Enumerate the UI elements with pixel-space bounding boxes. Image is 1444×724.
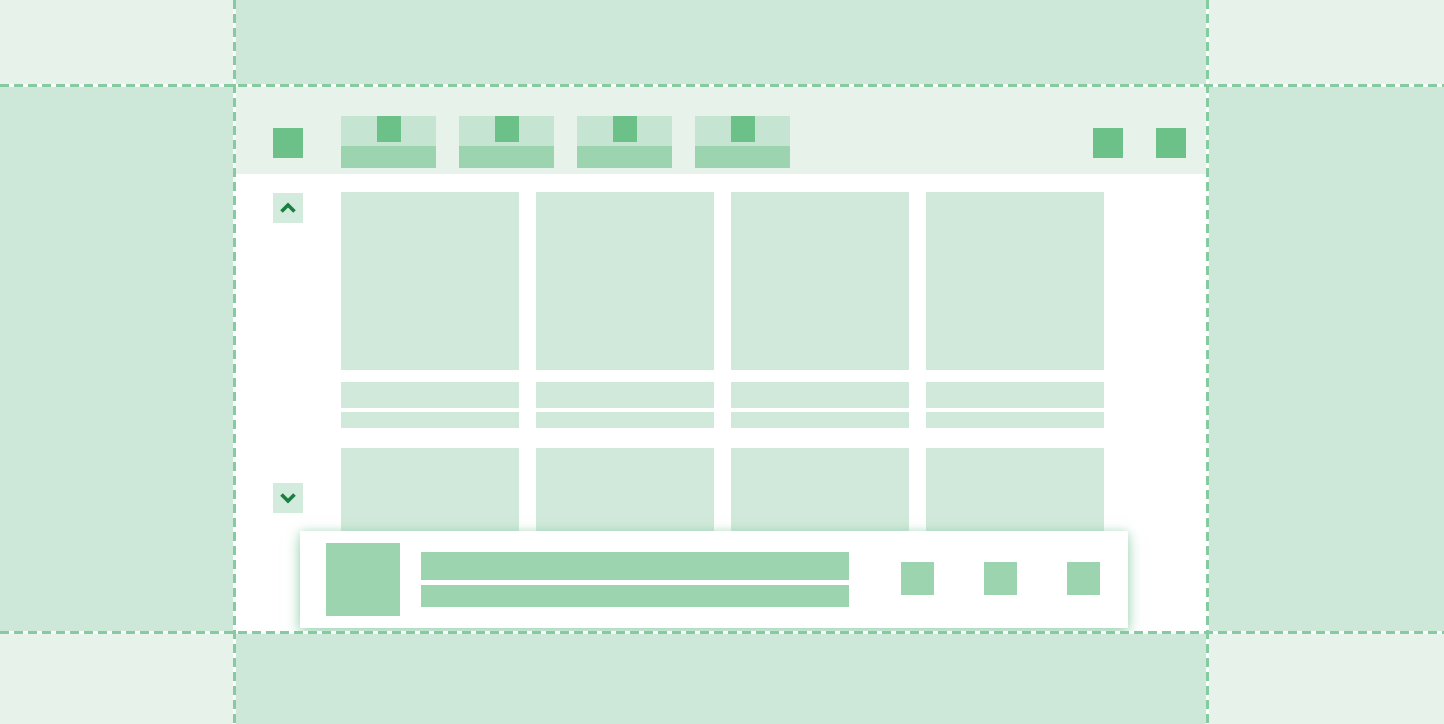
chevron-up-icon (278, 201, 298, 215)
page-region-top-center (235, 0, 1208, 85)
page-region-bottom-right (1208, 633, 1444, 724)
content-card[interactable] (536, 192, 714, 428)
content-card[interactable] (731, 192, 909, 428)
chevron-down-icon (278, 491, 298, 505)
card-subtitle-placeholder (341, 412, 519, 428)
banner-action-button[interactable] (1067, 562, 1100, 595)
app-logo-square-icon (273, 128, 303, 158)
page-region-top-right (1208, 0, 1444, 85)
banner-action-group (901, 562, 1100, 595)
browser-tab[interactable] (341, 116, 436, 168)
browser-tab[interactable] (695, 116, 790, 168)
scroll-up-button[interactable] (273, 193, 303, 223)
browser-tab-header (695, 116, 790, 146)
toolbar-square-icon[interactable] (1156, 128, 1186, 158)
card-title-placeholder (731, 382, 909, 408)
page-region-mid-right (1208, 85, 1444, 633)
favicon-square-icon (377, 116, 401, 142)
browser-tab-header (459, 116, 554, 146)
content-card[interactable] (341, 192, 519, 428)
card-subtitle-placeholder (731, 412, 909, 428)
toolbar-square-icon[interactable] (1093, 128, 1123, 158)
card-title-placeholder (341, 382, 519, 408)
card-image-placeholder (341, 192, 519, 370)
banner-thumbnail-placeholder (326, 543, 400, 616)
favicon-square-icon (731, 116, 755, 142)
page-region-top-left (0, 0, 235, 85)
card-image-placeholder (926, 192, 1104, 370)
card-title-placeholder (926, 382, 1104, 408)
card-image-placeholder (536, 192, 714, 370)
browser-tab[interactable] (577, 116, 672, 168)
tab-strip (341, 116, 813, 168)
browser-tab[interactable] (459, 116, 554, 168)
illustration-canvas (0, 0, 1444, 724)
browser-tab-title-placeholder (459, 146, 554, 168)
page-region-mid-left (0, 85, 235, 633)
banner-action-button[interactable] (901, 562, 934, 595)
browser-chrome (235, 85, 1208, 174)
browser-tab-header (577, 116, 672, 146)
card-image-placeholder (731, 192, 909, 370)
page-region-bottom-left (0, 633, 235, 724)
banner-text-line-2 (421, 585, 849, 607)
browser-tab-title-placeholder (577, 146, 672, 168)
toolbar-button-group (1093, 128, 1186, 158)
banner-text-line-1 (421, 552, 849, 580)
scroll-down-button[interactable] (273, 483, 303, 513)
browser-tab-header (341, 116, 436, 146)
bottom-banner (300, 531, 1128, 628)
favicon-square-icon (495, 116, 519, 142)
banner-action-button[interactable] (984, 562, 1017, 595)
content-card[interactable] (926, 192, 1104, 428)
card-grid-row-1 (341, 192, 1104, 428)
browser-viewport (235, 85, 1208, 633)
card-title-placeholder (536, 382, 714, 408)
browser-tab-title-placeholder (695, 146, 790, 168)
page-region-bottom-center (235, 633, 1208, 724)
browser-tab-title-placeholder (341, 146, 436, 168)
favicon-square-icon (613, 116, 637, 142)
card-subtitle-placeholder (926, 412, 1104, 428)
card-subtitle-placeholder (536, 412, 714, 428)
